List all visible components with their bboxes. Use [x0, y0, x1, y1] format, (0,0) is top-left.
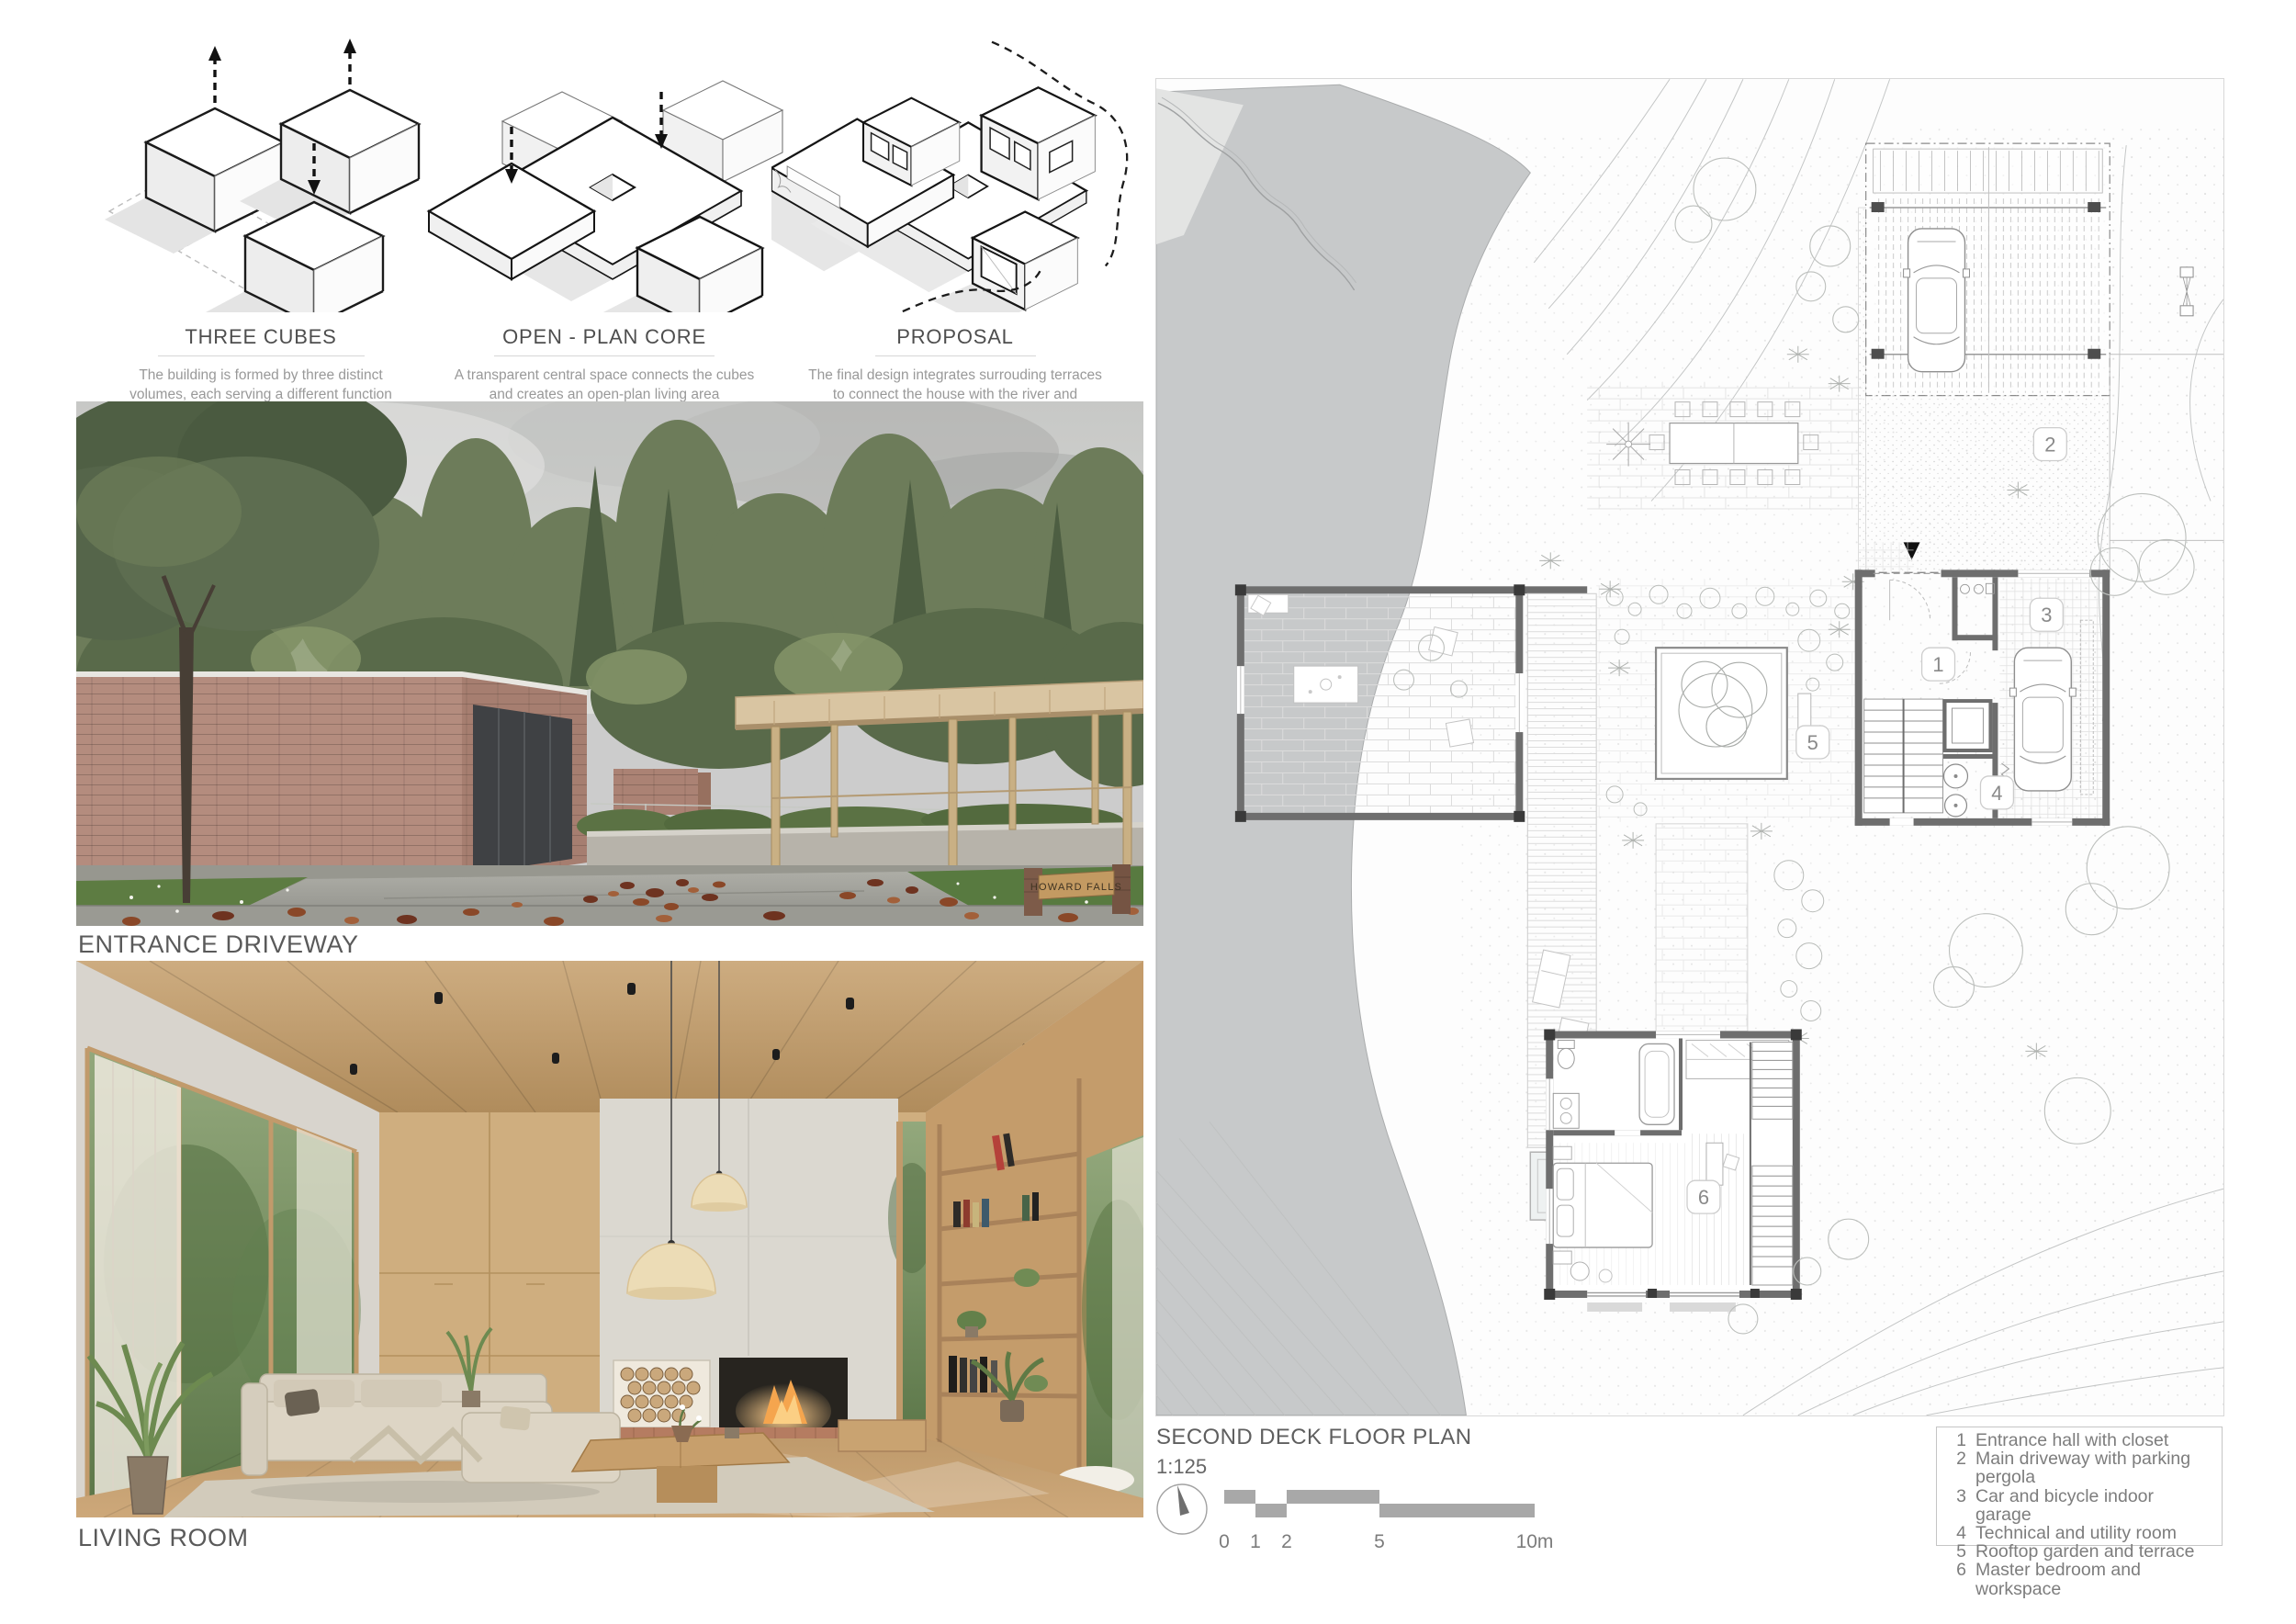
scale-bar [1224, 1490, 1535, 1517]
north-and-scalebar: 0 1 2 5 10m [1155, 1472, 1559, 1568]
render-label-living-room: LIVING ROOM [78, 1524, 249, 1552]
plan-badge-6: 6 [1687, 1180, 1720, 1213]
legend-row: 1 Entrance hall with closet [1942, 1431, 2214, 1449]
legend-label: Rooftop garden and terrace [1975, 1542, 2195, 1561]
sheer-curtain-right [1112, 1137, 1143, 1503]
plan-caption: SECOND DECK FLOOR PLAN 1:125 [1156, 1425, 1472, 1479]
svg-text:5: 5 [1807, 731, 1818, 754]
parasol [1606, 423, 1650, 467]
concept-title: THREE CUBES [81, 325, 441, 349]
legend-label: Entrance hall with closet [1975, 1431, 2168, 1449]
title-rule [158, 355, 365, 356]
legend-num: 1 [1942, 1431, 1966, 1449]
legend-num: 4 [1942, 1524, 1966, 1542]
legend-num: 2 [1942, 1449, 1966, 1486]
parked-car [1904, 229, 1970, 372]
render-entrance-driveway: HOWARD FALLS [76, 401, 1143, 926]
legend-row: 6 Master bedroom and workspace [1942, 1561, 2214, 1597]
svg-text:4: 4 [1991, 782, 2002, 805]
concept-diagram-proposal: PROPOSAL The final design integrates sur… [771, 37, 1139, 423]
svg-text:1: 1 [1250, 1531, 1261, 1552]
north-arrow-icon [1157, 1484, 1207, 1534]
presentation-board: THREE CUBES The building is formed by th… [0, 0, 2296, 1624]
tree-planter [1656, 648, 1787, 779]
legend-row: 3 Car and bicycle indoor garage [1942, 1487, 2214, 1524]
legend-num: 5 [1942, 1542, 1966, 1561]
concept-diagram-three-cubes: THREE CUBES The building is formed by th… [81, 37, 441, 404]
bedroom-suite [1544, 1029, 1802, 1311]
floor-plan-drawing: 1 2 3 4 5 [1156, 79, 2223, 1415]
elevator [1945, 701, 1991, 750]
window-bench [838, 1420, 926, 1451]
legend-label: Car and bicycle indoor garage [1975, 1487, 2214, 1524]
open-plan-core-drawing [424, 37, 784, 312]
svg-text:10m: 10m [1516, 1531, 1554, 1552]
proposal-drawing [771, 37, 1139, 312]
plan-badge-2: 2 [2033, 428, 2066, 461]
title-rule [494, 355, 715, 356]
svg-text:1: 1 [1932, 653, 1943, 676]
legend-num: 3 [1942, 1487, 1966, 1524]
legend-row: 2 Main driveway with parking pergola [1942, 1449, 2214, 1486]
plan-badge-5: 5 [1796, 726, 1829, 759]
distant-brick-wall [613, 769, 711, 815]
render-living-room [76, 961, 1143, 1517]
render-label-entrance-driveway: ENTRANCE DRIVEWAY [78, 930, 359, 959]
plan-badge-4: 4 [1980, 776, 2013, 809]
armchair [1570, 1262, 1589, 1280]
legend-row: 4 Technical and utility room [1942, 1524, 2214, 1542]
svg-text:5: 5 [1374, 1531, 1385, 1552]
svg-text:3: 3 [2041, 603, 2052, 626]
entrance-driveway-scene: HOWARD FALLS [76, 401, 1143, 926]
plan-badge-3: 3 [2030, 598, 2063, 631]
plan-title: SECOND DECK FLOOR PLAN [1156, 1425, 1472, 1450]
garage-door [473, 705, 572, 874]
plan-legend: 1 Entrance hall with closet 2 Main drive… [1936, 1427, 2223, 1546]
three-cubes-drawing [82, 37, 440, 312]
brick-garage-building [76, 671, 587, 883]
concept-diagram-open-plan-core: OPEN - PLAN CORE A transparent central s… [424, 37, 784, 404]
scale-bar-labels: 0 1 2 5 10m [1219, 1531, 1553, 1552]
concept-description: The building is formed by three distinct… [109, 366, 412, 404]
svg-text:2: 2 [2044, 434, 2055, 457]
floor-plan-panel: 1 2 3 4 5 [1155, 78, 2224, 1416]
concept-description: A transparent central space connects the… [453, 366, 756, 404]
title-rule [875, 355, 1036, 356]
throw-pillow [284, 1389, 320, 1417]
living-room-scene [76, 961, 1143, 1517]
legend-label: Technical and utility room [1975, 1524, 2177, 1542]
plan-badge-1: 1 [1922, 648, 1955, 681]
legend-num: 6 [1942, 1561, 1966, 1597]
svg-text:6: 6 [1698, 1186, 1709, 1209]
garage-car [2009, 648, 2076, 791]
stairs [1864, 699, 1943, 813]
bed [1553, 1146, 1652, 1264]
legend-row: 5 Rooftop garden and terrace [1942, 1542, 2214, 1561]
scalebar-wrap: 0 1 2 5 10m [1155, 1472, 1559, 1573]
legend-label: Main driveway with parking pergola [1975, 1449, 2214, 1486]
svg-text:0: 0 [1219, 1531, 1230, 1552]
legend-label: Master bedroom and workspace [1975, 1561, 2214, 1597]
concept-title: PROPOSAL [771, 325, 1139, 349]
svg-text:2: 2 [1281, 1531, 1292, 1552]
concept-title: OPEN - PLAN CORE [424, 325, 784, 349]
sign-text: HOWARD FALLS [1030, 882, 1122, 893]
dining-terrace [1587, 382, 1862, 511]
